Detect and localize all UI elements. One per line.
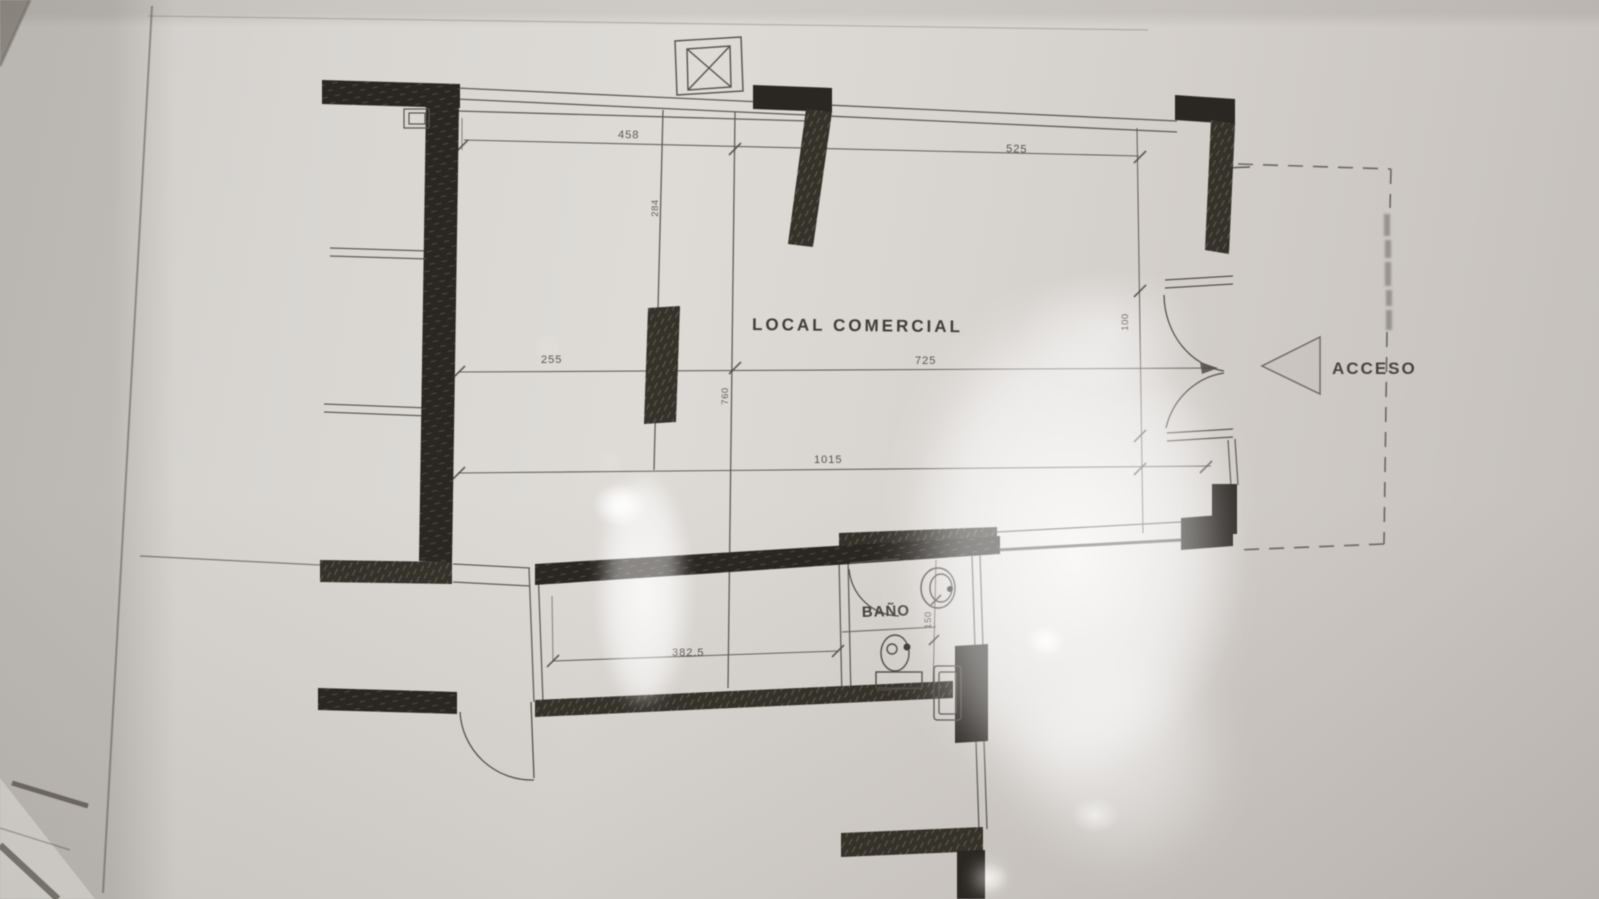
- door-arc-upper: [1164, 295, 1224, 371]
- toilet-icon: [876, 635, 922, 690]
- illegible-vertical-annotation: [1384, 214, 1392, 330]
- corridor-door: [460, 702, 534, 780]
- dim-760: 760: [720, 387, 731, 404]
- dim-525: 525: [1006, 143, 1028, 156]
- page-corner-shadows: [0, 0, 95, 899]
- door-arc-corridor: [460, 712, 534, 780]
- shaft-symbol-icon: [675, 37, 743, 95]
- bathroom-label: BAÑO: [862, 601, 911, 621]
- floor-plan-drawing: LOCAL COMERCIAL BAÑO ACCESO 458 525 255 …: [0, 0, 1599, 899]
- access-arrow-icon: [1262, 337, 1320, 394]
- dim-1015: 1015: [814, 454, 842, 466]
- dim-458: 458: [618, 129, 640, 141]
- dim-255: 255: [541, 354, 562, 366]
- wall-niche-detail: [404, 109, 429, 128]
- floor-plan-photo: LOCAL COMERCIAL BAÑO ACCESO 458 525 255 …: [0, 0, 1599, 899]
- access-label: ACCESO: [1332, 359, 1417, 378]
- room-title: LOCAL COMERCIAL: [752, 315, 963, 336]
- dim-725: 725: [915, 355, 936, 367]
- dim-382-5: 382.5: [672, 647, 705, 659]
- dim-100: 100: [1120, 313, 1131, 330]
- dim-284: 284: [650, 199, 661, 216]
